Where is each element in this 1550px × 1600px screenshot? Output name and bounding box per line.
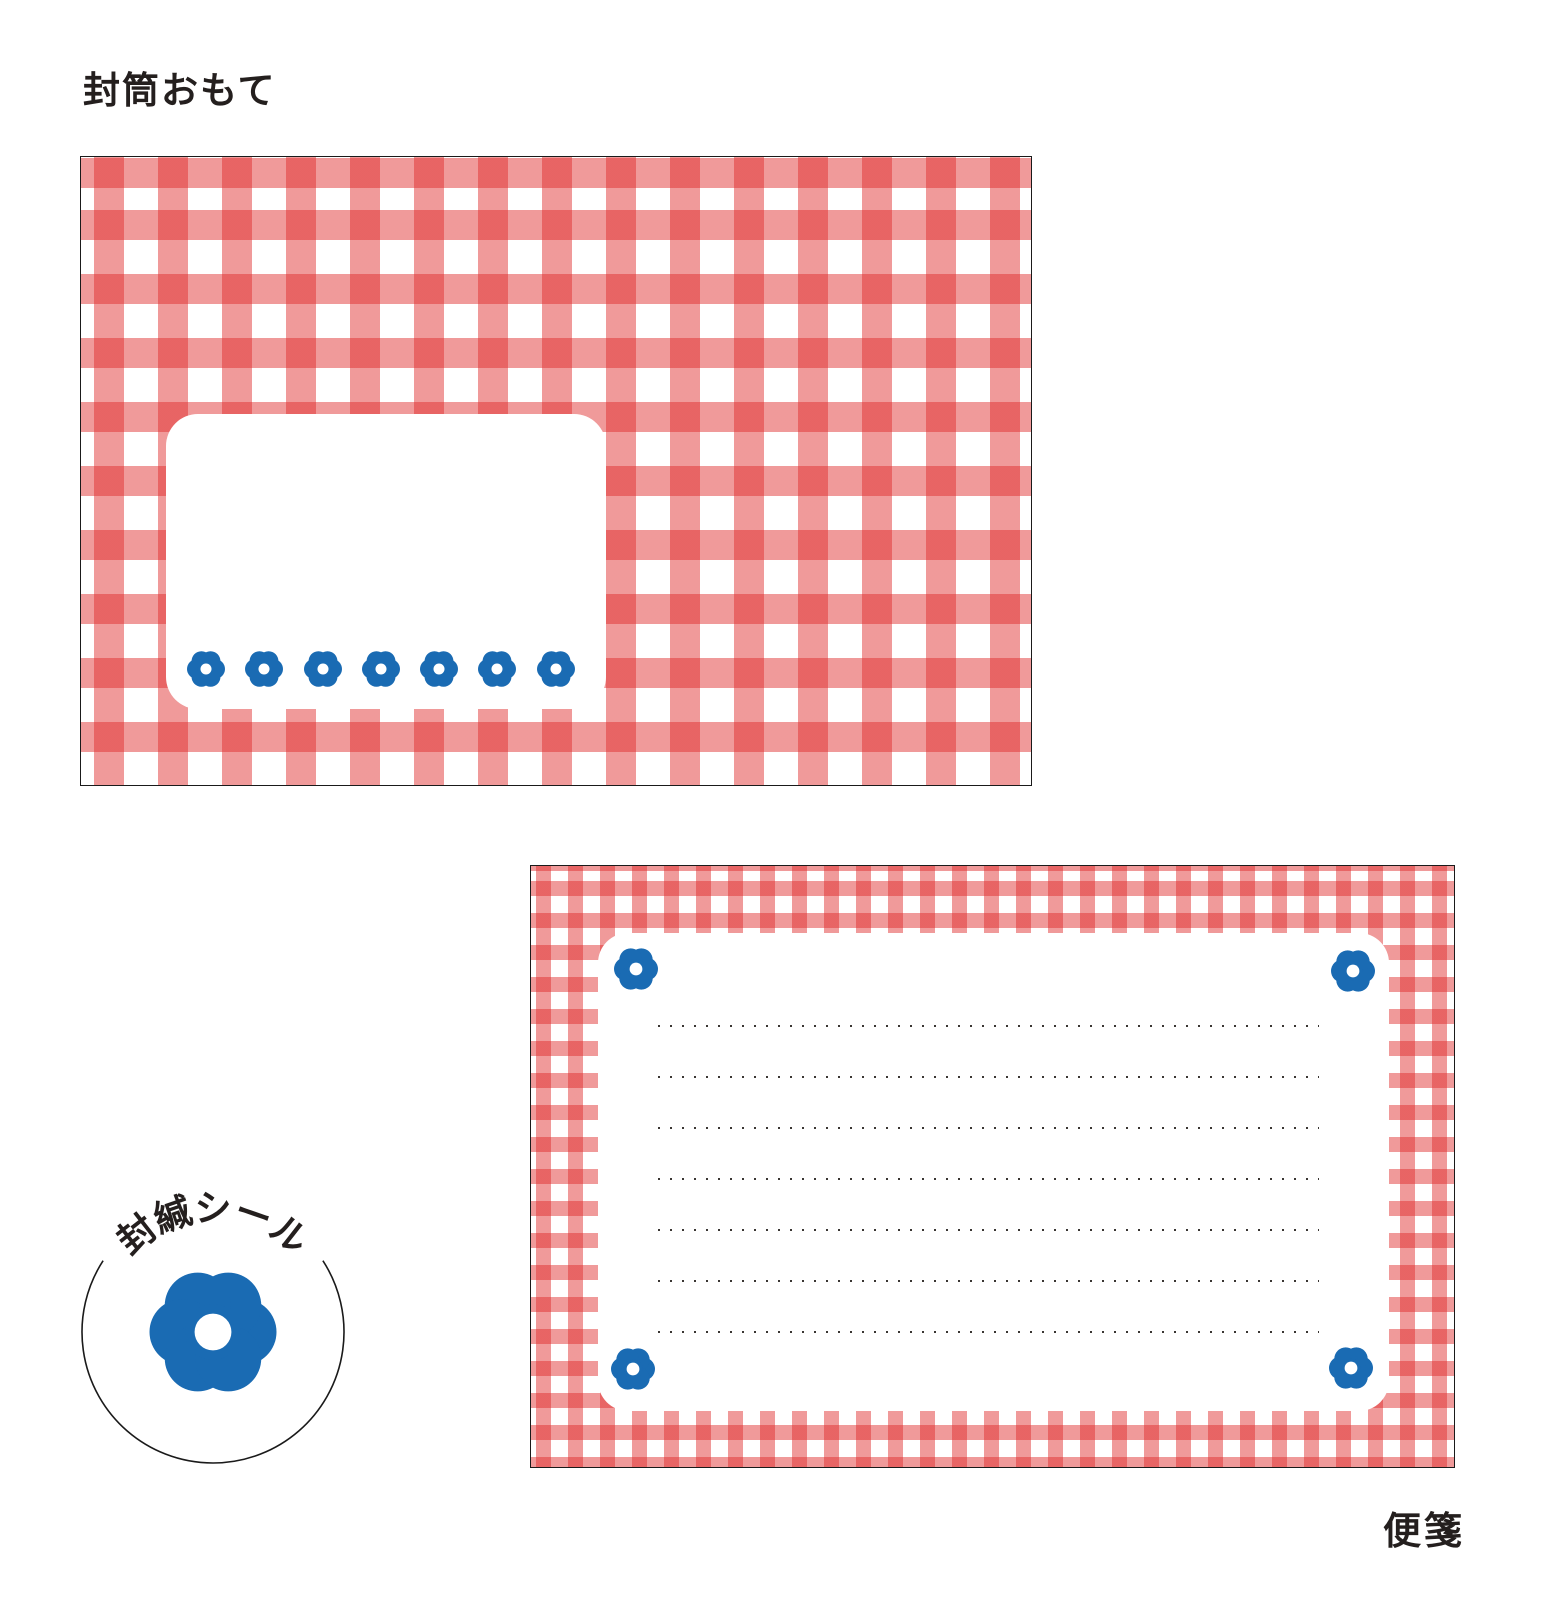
writing-guide-dotted-line [658,1331,1319,1333]
flower-icon [611,1347,655,1391]
flower-icon [1331,949,1375,993]
flower-icon [537,650,575,688]
flower-icon [420,650,458,688]
flower-icon [1329,1346,1373,1390]
writing-guide-dotted-line [658,1229,1319,1231]
writing-guide-dotted-line [658,1127,1319,1129]
letter-writing-area [598,933,1389,1411]
address-flower-row [187,650,575,688]
flower-icon [187,650,225,688]
flower-icon [362,650,400,688]
letter-set-design-sheet: 封筒おもて 封緘シール 便箋 [0,0,1550,1600]
seal-sticker [73,1192,353,1472]
address-panel [166,414,606,709]
letter-paper-label: 便箋 [1383,1500,1465,1555]
flower-icon [614,947,658,991]
flower-icon [304,650,342,688]
writing-guide-dotted-line [658,1076,1319,1078]
flower-icon [150,1273,277,1392]
flower-icon [478,650,516,688]
letter-paper [530,865,1455,1468]
flower-icon [245,650,283,688]
envelope-front-label: 封筒おもて [83,60,277,114]
writing-guide-dotted-line [658,1025,1319,1027]
writing-guide-dotted-line [658,1280,1319,1282]
envelope-front [80,156,1032,786]
writing-guide-dotted-line [658,1178,1319,1180]
